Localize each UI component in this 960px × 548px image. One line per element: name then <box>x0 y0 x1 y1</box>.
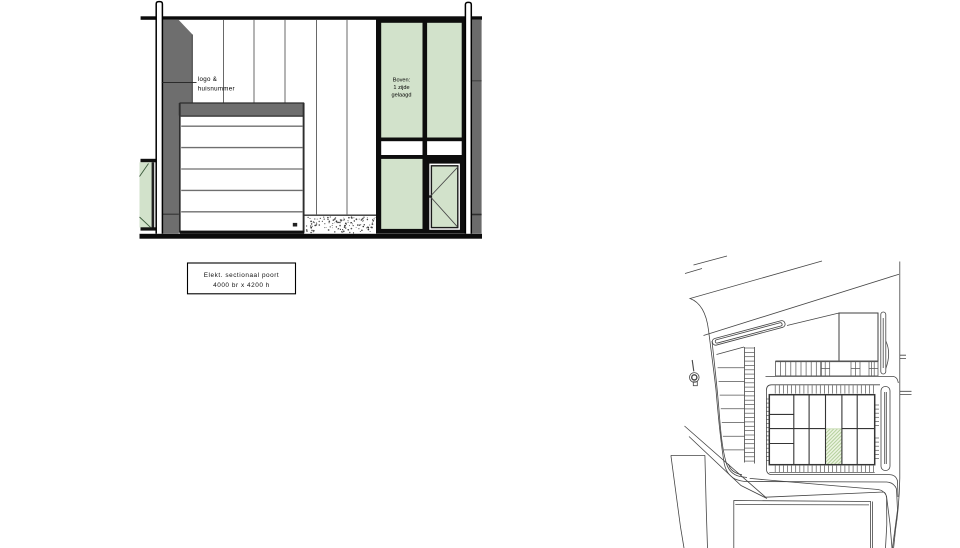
svg-text:logo &: logo & <box>198 76 218 83</box>
svg-text:gelaagd: gelaagd <box>392 93 412 99</box>
svg-text:Boven:: Boven: <box>393 78 411 84</box>
svg-text:huisnummer: huisnummer <box>198 86 235 93</box>
svg-text:4000 br x 4200 h: 4000 br x 4200 h <box>213 282 270 289</box>
svg-text:Elekt. sectionaal poort: Elekt. sectionaal poort <box>204 272 280 279</box>
svg-text:1 zijde: 1 zijde <box>393 85 409 91</box>
